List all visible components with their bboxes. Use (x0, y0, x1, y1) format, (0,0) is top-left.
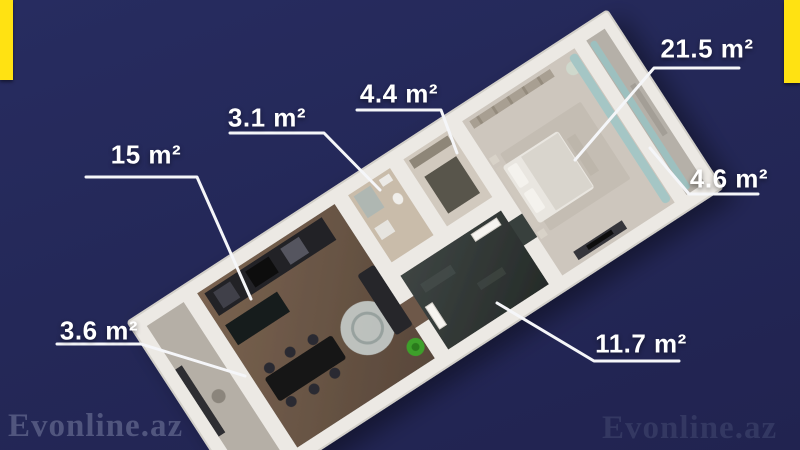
accent-bar-right (784, 0, 800, 83)
apartment-model (127, 10, 722, 450)
floor-plan-illustration (0, 0, 800, 450)
area-label-balcony-left: 3.6 m² (60, 316, 138, 347)
area-label-bathroom: 3.1 m² (228, 103, 306, 134)
area-label-balcony-right: 4.6 m² (690, 164, 768, 195)
area-label-bedroom: 21.5 m² (660, 34, 753, 65)
floor-plan-poster: Evonline.az Evonline.az (0, 0, 800, 450)
area-label-wardrobe-hall: 4.4 m² (360, 79, 438, 110)
area-label-living: 15 m² (111, 140, 181, 171)
accent-bar-left (0, 0, 13, 80)
area-label-hallway: 11.7 m² (595, 329, 687, 360)
